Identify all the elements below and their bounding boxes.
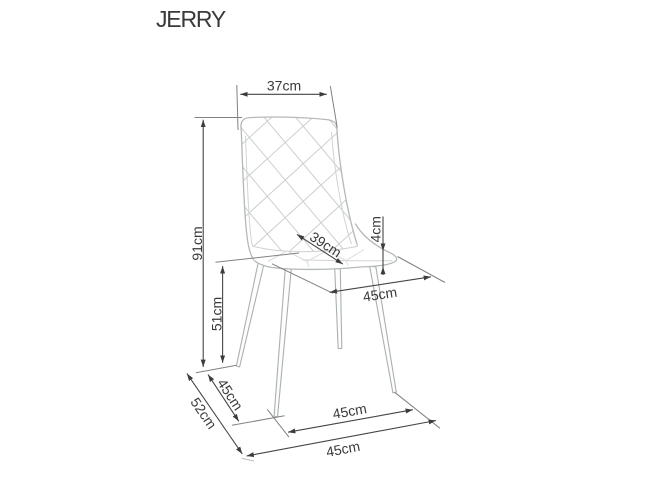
svg-text:37cm: 37cm <box>267 78 301 94</box>
svg-text:51cm: 51cm <box>208 297 224 331</box>
svg-text:91cm: 91cm <box>189 226 205 260</box>
svg-text:JERRY: JERRY <box>156 6 226 32</box>
svg-text:4cm: 4cm <box>368 216 384 242</box>
